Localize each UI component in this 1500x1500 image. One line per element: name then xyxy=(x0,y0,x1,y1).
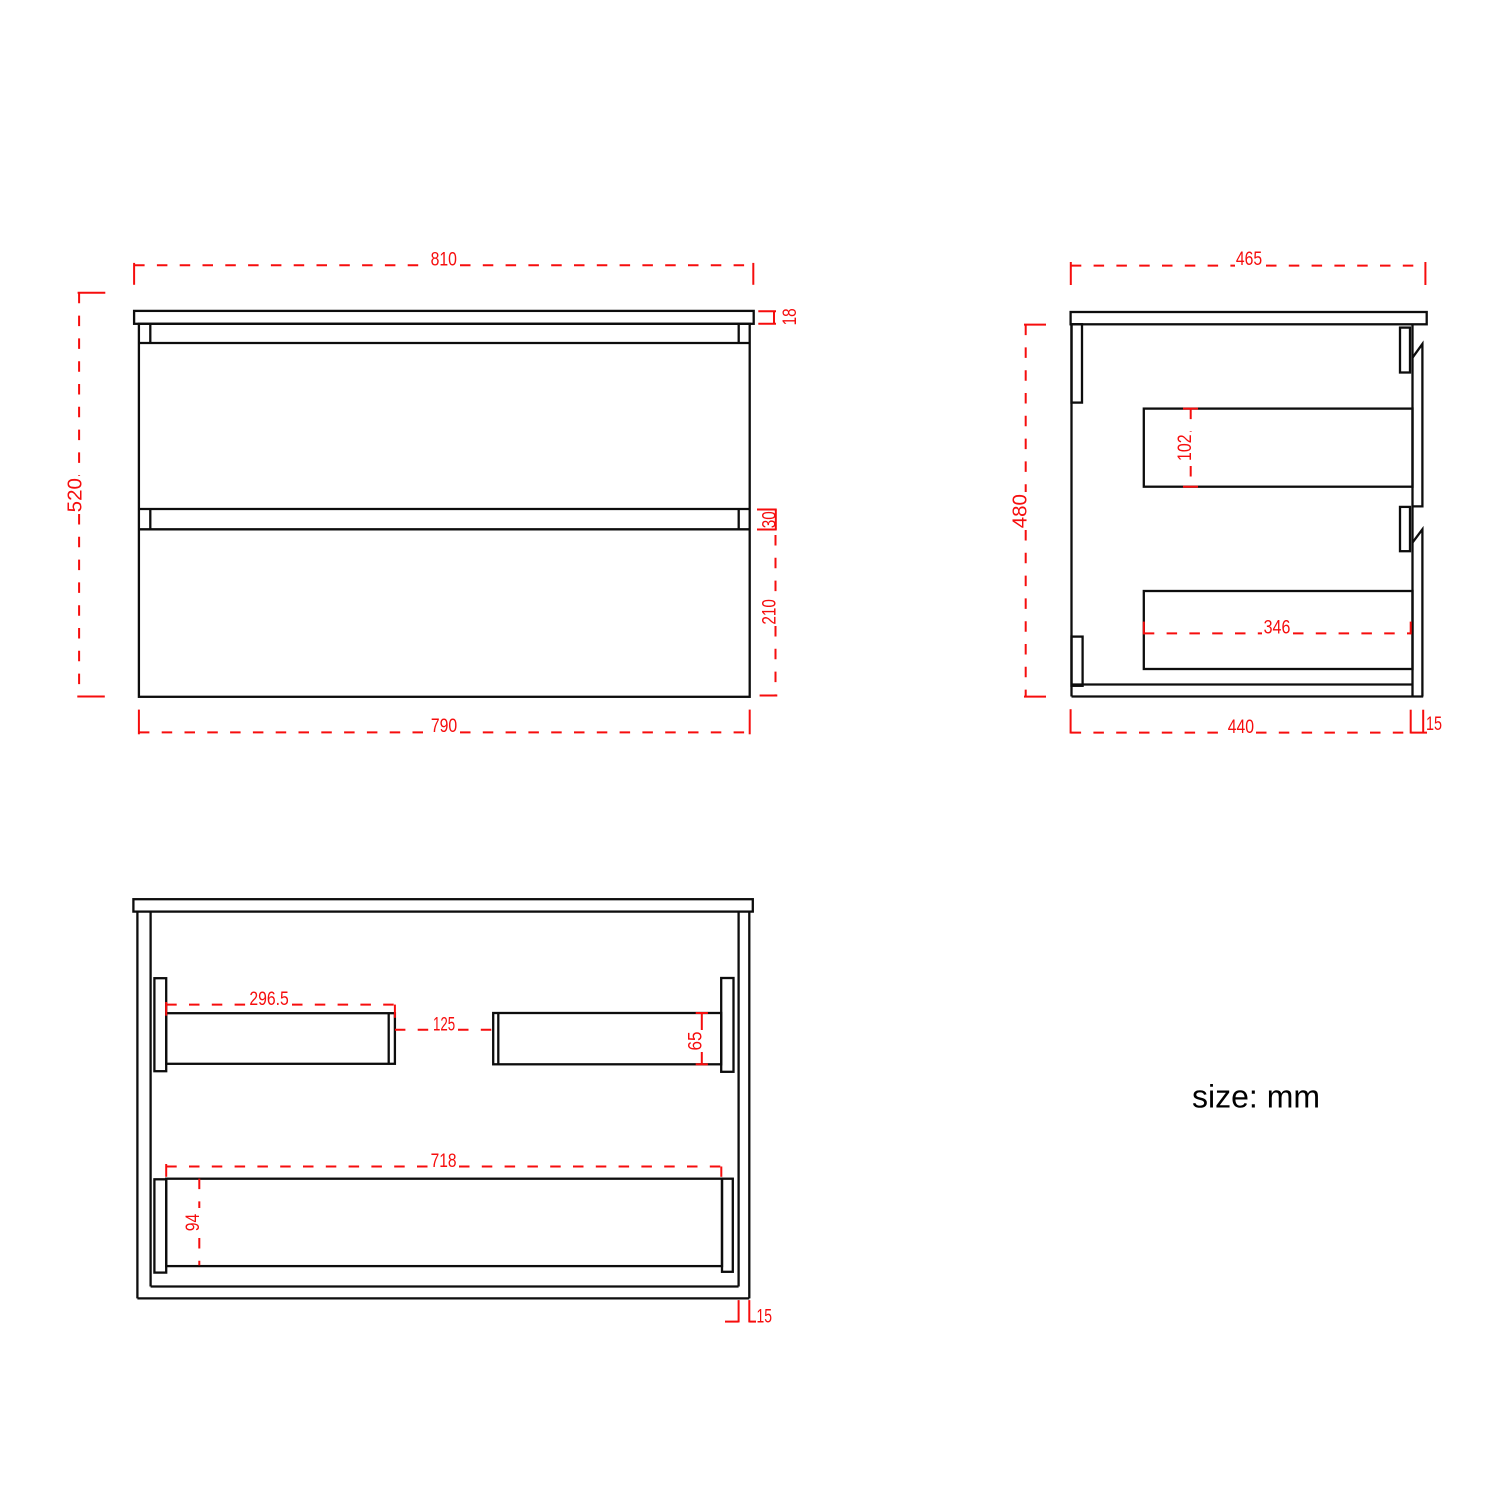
svg-text:size: mm: size: mm xyxy=(1192,1079,1320,1115)
svg-text:210: 210 xyxy=(759,599,780,625)
svg-text:718: 718 xyxy=(431,1151,457,1172)
svg-text:94: 94 xyxy=(183,1213,204,1231)
svg-text:30: 30 xyxy=(760,511,781,528)
svg-text:65: 65 xyxy=(686,1032,707,1051)
svg-text:125: 125 xyxy=(433,1014,455,1035)
svg-text:18: 18 xyxy=(780,308,801,325)
svg-text:790: 790 xyxy=(431,716,457,737)
svg-text:15: 15 xyxy=(1426,714,1442,735)
svg-text:465: 465 xyxy=(1236,249,1262,270)
svg-text:520: 520 xyxy=(63,478,86,512)
svg-text:15: 15 xyxy=(757,1306,773,1327)
svg-text:480: 480 xyxy=(1009,494,1032,528)
svg-text:346: 346 xyxy=(1264,618,1291,639)
svg-text:102: 102 xyxy=(1175,434,1196,461)
svg-text:296.5: 296.5 xyxy=(249,989,288,1010)
svg-text:810: 810 xyxy=(431,250,457,271)
svg-text:440: 440 xyxy=(1228,717,1254,738)
